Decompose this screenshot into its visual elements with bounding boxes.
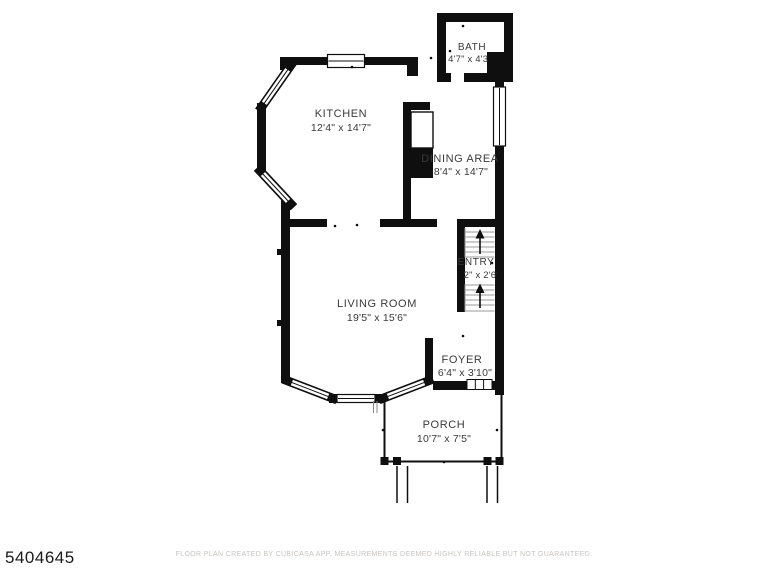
foyer-label: FOYER (442, 354, 483, 366)
bath-dims: 4'7" x 4'3" (448, 54, 492, 65)
porch-dims: 10'7" x 7'5" (417, 433, 471, 445)
window (328, 55, 365, 68)
disclaimer-text: FLOOR PLAN CREATED BY CUBICASA APP. MEAS… (0, 551, 768, 558)
stair-direction-arrow-icon (476, 229, 485, 308)
front-door-threshold (467, 380, 492, 390)
living-label: LIVING ROOM (337, 298, 417, 310)
floor-plan-page: BATH 4'7" x 4'3" KITCHEN 12'4" x 14'7" D… (0, 0, 768, 576)
bath-label: BATH (458, 42, 486, 53)
dining-label: DINING AREA (421, 153, 499, 165)
bay-window (254, 165, 297, 211)
bay-window (377, 375, 434, 404)
dining-dims: 8'4" x 14'7" (434, 166, 488, 178)
foyer-dims: 6'4" x 3'10" (438, 367, 492, 379)
living-dims: 19'5" x 15'6" (347, 312, 407, 324)
porch-steps (397, 466, 498, 503)
porch-label: PORCH (423, 419, 466, 431)
window (494, 87, 506, 146)
kitchen-label: KITCHEN (315, 108, 367, 120)
bay-window (255, 59, 297, 113)
floor-plan-drawing: BATH 4'7" x 4'3" KITCHEN 12'4" x 14'7" D… (0, 0, 768, 576)
kitchen-dims: 12'4" x 14'7" (311, 122, 371, 134)
entry-label: ENTRY (458, 257, 495, 268)
kitchen-appliance (411, 112, 433, 178)
toilet-fixture (487, 52, 504, 82)
